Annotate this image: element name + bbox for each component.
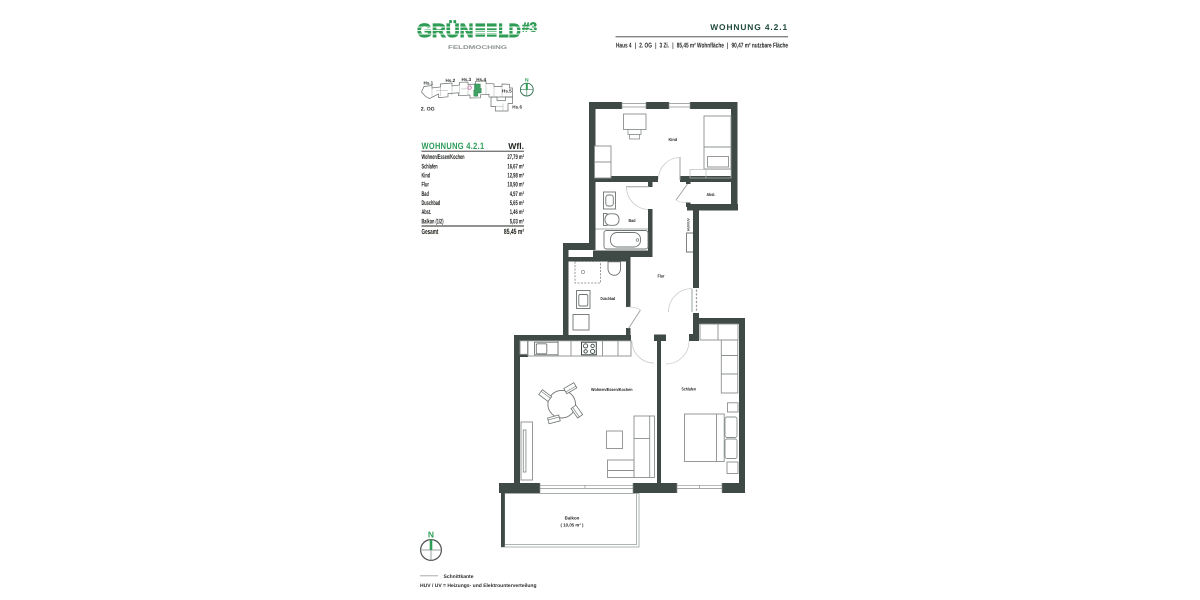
svg-text:Gesamt: Gesamt	[422, 227, 439, 236]
svg-text:Hs.1: Hs.1	[424, 80, 434, 85]
svg-text:LD: LD	[498, 21, 521, 42]
svg-text:4,97 m²: 4,97 m²	[510, 191, 525, 198]
svg-text:Bad: Bad	[422, 191, 429, 198]
svg-text:5,03 m²: 5,03 m²	[510, 218, 525, 225]
svg-text:Abst.: Abst.	[422, 209, 432, 216]
svg-text:WOHNUNG 4.2.1: WOHNUNG 4.2.1	[710, 22, 788, 32]
svg-text:( 10,05 m² ): ( 10,05 m² )	[561, 523, 584, 528]
svg-text:Wohnen/Essen/Kochen: Wohnen/Essen/Kochen	[422, 154, 465, 161]
svg-text:N: N	[525, 78, 529, 84]
svg-text:Abst.: Abst.	[707, 192, 716, 197]
svg-text:Hs.2: Hs.2	[446, 78, 456, 83]
svg-text:12,98 m²: 12,98 m²	[507, 173, 524, 180]
svg-text:Schlafen: Schlafen	[682, 386, 697, 391]
svg-text:Duschbad: Duschbad	[422, 200, 441, 207]
svg-text:Haus 4 | 2. OG | 3 Zi. |: Haus 4 | 2. OG | 3 Zi. | 85,45 m² Wohnfl…	[616, 43, 788, 50]
svg-text:Wfl.: Wfl.	[508, 141, 524, 151]
svg-text:5,65 m²: 5,65 m²	[510, 200, 525, 207]
svg-text:Flur: Flur	[422, 182, 430, 189]
svg-text:Duschbad: Duschbad	[601, 296, 616, 301]
svg-text:Flur: Flur	[658, 274, 665, 279]
svg-text:85,45 m²: 85,45 m²	[504, 227, 524, 236]
svg-text:HUV/UV: HUV/UV	[687, 217, 691, 231]
svg-text:HUV / UV = Heizungs- und Elekt: HUV / UV = Heizungs- und Elektrounterver…	[420, 583, 537, 589]
svg-text:Kind: Kind	[422, 173, 431, 180]
svg-text:FELDMOCHING: FELDMOCHING	[448, 45, 507, 51]
svg-text:Balkon (1/2): Balkon (1/2)	[422, 218, 444, 225]
svg-text:Schlafen: Schlafen	[422, 163, 438, 170]
svg-text:1,46 m²: 1,46 m²	[510, 209, 525, 216]
svg-text:WOHNUNG 4.2.1: WOHNUNG 4.2.1	[422, 141, 485, 151]
svg-text:Schnittkante: Schnittkante	[444, 574, 474, 580]
svg-text:N: N	[428, 530, 434, 540]
svg-text:Kind: Kind	[669, 137, 678, 142]
svg-text:10,90 m²: 10,90 m²	[507, 182, 524, 189]
svg-text:Bad: Bad	[629, 218, 636, 223]
svg-text:Hs.3: Hs.3	[462, 77, 472, 82]
svg-text:27,79 m²: 27,79 m²	[507, 154, 524, 161]
svg-text:16,67 m²: 16,67 m²	[507, 163, 524, 170]
svg-text:2. OG: 2. OG	[421, 107, 435, 113]
svg-text:Hs.6: Hs.6	[512, 104, 522, 109]
svg-text:Hs.4: Hs.4	[476, 77, 486, 82]
svg-text:Balkon: Balkon	[565, 516, 580, 521]
svg-text:Hs.5: Hs.5	[502, 89, 512, 94]
svg-text:Wohnen/Essen/Kochen: Wohnen/Essen/Kochen	[591, 387, 633, 392]
